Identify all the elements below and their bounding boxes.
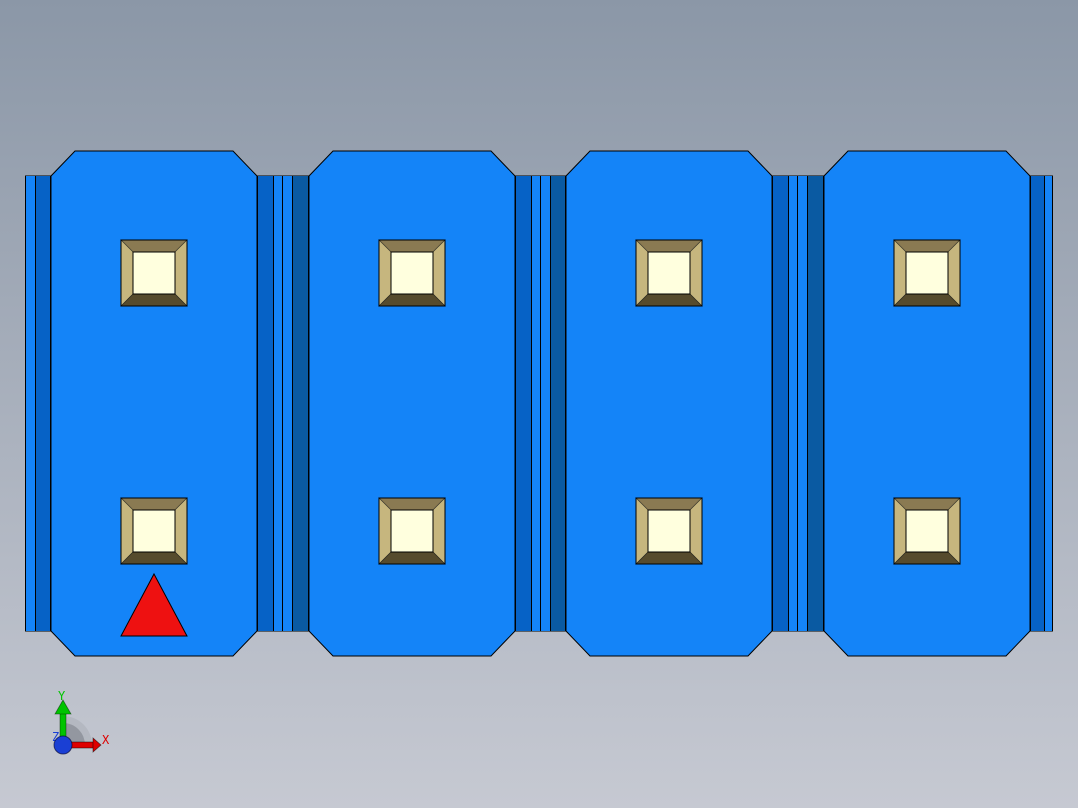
groove-stripe [532, 176, 540, 631]
groove-stripe [1045, 176, 1052, 631]
groove-stripe [293, 176, 308, 631]
groove-stripe [258, 176, 273, 631]
model-canvas[interactable]: Z Y X [0, 0, 1078, 808]
groove-stripe [808, 176, 823, 631]
connector-segment-1[interactable] [51, 151, 257, 656]
groove-stripe [541, 176, 550, 631]
groove-stripe [516, 176, 531, 631]
x-axis-arrowhead [93, 738, 101, 752]
socket-hole[interactable] [894, 498, 960, 564]
groove-stripe [798, 176, 807, 631]
connector-segment-3[interactable] [566, 151, 772, 656]
groove-band-2[interactable] [515, 176, 566, 632]
groove-stripe [26, 176, 35, 631]
socket-hole[interactable] [636, 498, 702, 564]
segment-body-face[interactable] [566, 151, 772, 656]
groove-stripe [1031, 176, 1044, 631]
x-axis-label: X [102, 733, 110, 747]
socket-hole[interactable] [894, 240, 960, 306]
right-end-grooves[interactable] [1030, 176, 1053, 632]
socket-hole[interactable] [121, 498, 187, 564]
socket-hole[interactable] [636, 240, 702, 306]
groove-stripe [551, 176, 565, 631]
groove-stripe [789, 176, 797, 631]
origin-sphere[interactable] [54, 736, 72, 754]
groove-band-1[interactable] [257, 176, 309, 632]
segment-body-face[interactable] [309, 151, 515, 656]
socket-hole[interactable] [379, 240, 445, 306]
connector-segment-2[interactable] [309, 151, 515, 656]
cad-viewport[interactable]: Z Y X [0, 0, 1078, 808]
groove-stripe [274, 176, 282, 631]
groove-band-3[interactable] [772, 176, 824, 632]
socket-hole[interactable] [379, 498, 445, 564]
orientation-triad[interactable]: Z Y X [52, 689, 110, 754]
groove-stripe [283, 176, 292, 631]
cad-viewport-screenshot: { "viewport": { "kind": "3d-model-view",… [0, 0, 1078, 808]
groove-stripe [36, 176, 50, 631]
connector-segment-4[interactable] [824, 151, 1030, 656]
y-axis-label: Y [58, 689, 66, 703]
socket-hole[interactable] [121, 240, 187, 306]
left-end-grooves[interactable] [25, 176, 51, 632]
segment-body-face[interactable] [824, 151, 1030, 656]
groove-stripe [773, 176, 788, 631]
